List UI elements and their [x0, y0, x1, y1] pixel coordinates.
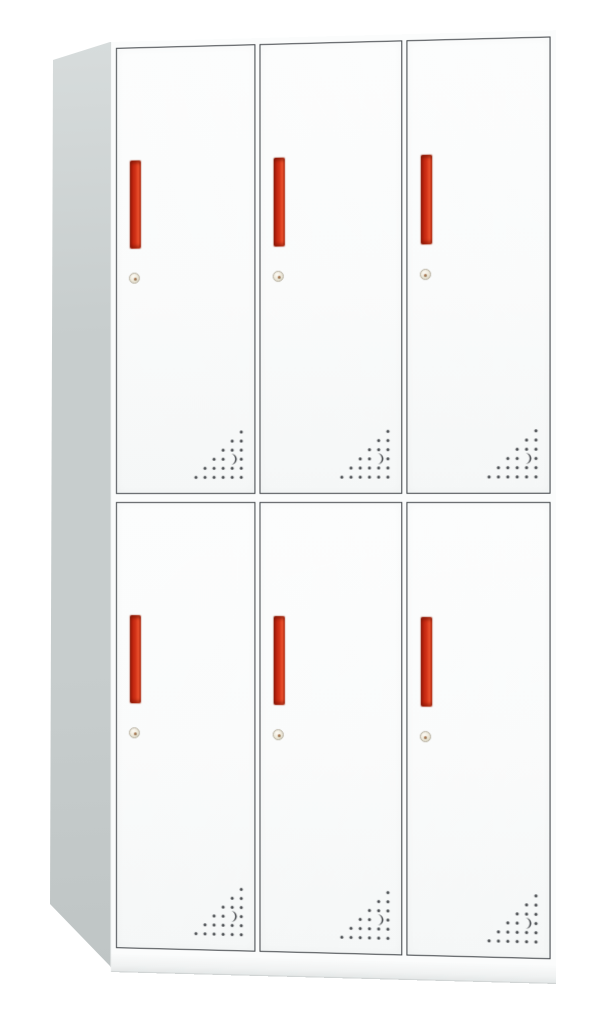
keyhole-dot-icon — [424, 736, 427, 739]
keyhole-dot-icon — [278, 275, 281, 278]
door-r2-c3 — [406, 502, 551, 959]
keyhole-dot-icon — [424, 273, 427, 276]
door-r2-c2 — [260, 502, 402, 955]
vent-crescent-icon — [526, 453, 531, 464]
keyhole-dot-icon — [278, 734, 281, 737]
vent-crescent-icon — [232, 454, 237, 465]
vent-crescent-icon — [378, 914, 383, 925]
keyhole-lock-icon — [129, 273, 140, 284]
door-handle — [274, 616, 285, 705]
keyhole-dot-icon — [133, 732, 136, 735]
door-grid — [116, 36, 551, 965]
cabinet-front-panel — [110, 30, 556, 978]
keyhole-dot-icon — [133, 277, 136, 280]
vent-holes-icon — [487, 892, 539, 944]
cabinet-side-panel — [50, 42, 110, 966]
vent-holes-icon — [487, 428, 539, 479]
keyhole-lock-icon — [419, 731, 430, 742]
door-handle — [130, 615, 141, 703]
keyhole-lock-icon — [273, 729, 284, 740]
door-handle — [420, 617, 431, 707]
door-r1-c1 — [116, 44, 256, 494]
keyhole-lock-icon — [273, 271, 284, 282]
vent-holes-icon — [339, 429, 390, 480]
keyhole-lock-icon — [129, 727, 140, 738]
vent-holes-icon — [194, 429, 244, 479]
door-r2-c1 — [116, 502, 256, 952]
keyhole-lock-icon — [419, 269, 430, 280]
product-photo-stage — [0, 0, 605, 1009]
vent-holes-icon — [339, 889, 390, 941]
door-handle — [274, 158, 285, 247]
vent-crescent-icon — [232, 911, 237, 922]
door-handle — [130, 160, 141, 248]
door-handle — [420, 155, 431, 245]
door-r1-c2 — [260, 40, 402, 494]
vent-crescent-icon — [526, 918, 531, 929]
vent-holes-icon — [194, 886, 244, 937]
vent-crescent-icon — [378, 453, 383, 464]
door-r1-c3 — [406, 36, 551, 493]
